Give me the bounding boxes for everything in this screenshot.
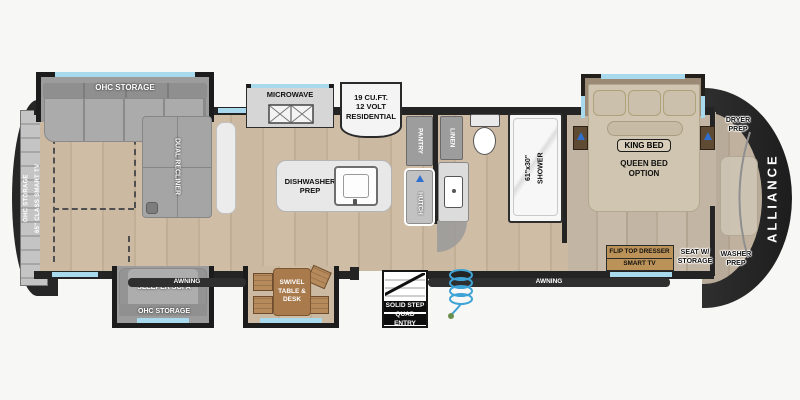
hutch-icon [416,175,424,182]
bedroom-slide-window [601,74,685,79]
awning-left: AWNING [128,278,246,287]
fridge-label: 19 CU.FT. 12 VOLT RESIDENTIAL [342,87,400,127]
entry-door-jamb [350,267,359,280]
dinette-window [260,318,322,323]
dinette-slideout: SWIVEL TABLE & DESK [243,266,339,328]
kitchen-window [251,84,329,88]
end-table [216,122,236,214]
bedroom-side-window-right [701,96,705,118]
lamp-icon [577,132,585,140]
queen-option-label: QUEEN BED OPTION [606,156,682,182]
shower-label: 61"x30" SHOWER [510,117,561,219]
power-cord-coil-icon [446,268,476,322]
window-bottom-rear [52,272,98,277]
awning-right-label: AWNING [536,278,563,286]
step-treads-icon [385,273,425,299]
dresser-label: FLIP TOP DRESSER [607,246,672,258]
vanity-faucet-icon [452,189,456,193]
window-bottom-dresser [610,272,672,277]
sofa-ohc-label: OHC STORAGE [60,82,190,94]
pillow [593,90,626,116]
hutch-label: HUTCH [406,184,433,222]
faucet-icon [353,199,357,205]
linen-label: LINEN [440,116,463,160]
bedroom-side-window-left [581,96,585,118]
pantry-label: PANTRY [406,116,433,166]
nightstand-right [700,126,715,150]
sleeper-window [137,318,189,323]
quad-entry-label: QUAD ENTRY [384,314,426,325]
recliner-cupholder [146,202,158,214]
awning-left-label: AWNING [174,278,201,286]
window-top-galley [218,108,246,113]
seat-storage-label: SEAT W/ STORAGE [674,247,716,269]
island-label: DISHWASHER PREP [282,170,338,202]
bath-vanity [438,162,469,222]
smart-tv-label: SMART TV [607,259,672,269]
slide-travel-line [53,208,134,210]
nightstand-left [573,126,588,150]
sleeper-sofa-slideout [112,266,214,328]
dinette-chair [309,296,329,314]
pillow [628,90,661,116]
dinette-chair [253,273,273,291]
king-bed-label: KING BED [588,138,700,152]
blanket-roll [607,121,683,136]
brand-logo: ALLIANCE [756,118,788,278]
lamp-icon [704,132,712,140]
microwave-label: MICROWAVE [250,90,330,100]
sofa-slide-window [55,72,195,77]
entry-steps: SOLID STEP QUAD ENTRY [382,270,428,328]
floor-plan: OHC STORAGE 65" CLASS SMART TV ALLIANCE … [0,0,800,400]
range-icon [268,104,314,124]
slide-travel-line [53,128,55,262]
pillow [663,90,696,116]
sleeper-ohc-label: OHC STORAGE [122,307,206,317]
dinette-chair [253,296,273,314]
toilet-icon [468,114,502,158]
closet-door-arc-icon [726,130,756,260]
flip-top-dresser: FLIP TOP DRESSER SMART TV [606,245,674,271]
swivel-table: SWIVEL TABLE & DESK [273,268,311,316]
sink-icon [334,166,378,206]
